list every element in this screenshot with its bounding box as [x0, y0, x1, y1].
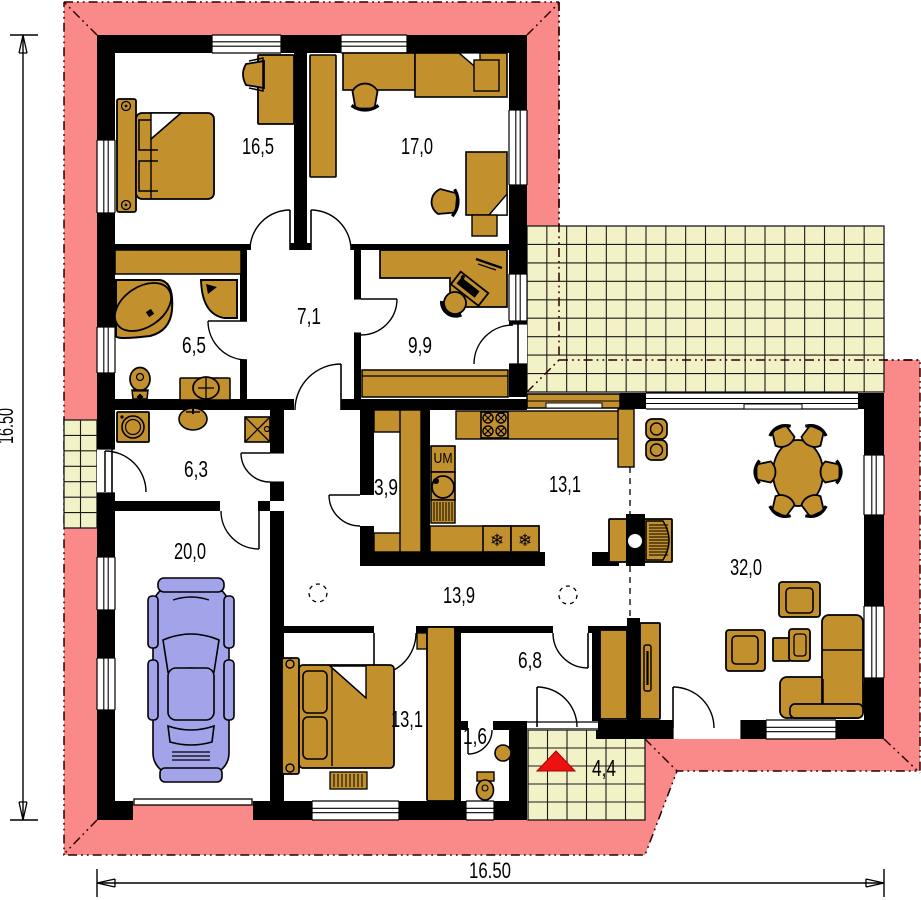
svg-text:UM: UM [434, 450, 453, 467]
svg-text:16.50: 16.50 [0, 408, 18, 444]
svg-text:1,6: 1,6 [463, 723, 487, 749]
svg-text:7,1: 7,1 [297, 303, 321, 329]
svg-text:13,9: 13,9 [443, 582, 475, 608]
svg-text:32,0: 32,0 [730, 554, 762, 580]
svg-text:6,8: 6,8 [518, 647, 542, 673]
svg-text:❄: ❄ [490, 531, 504, 550]
svg-text:13,1: 13,1 [391, 706, 423, 732]
svg-text:13,1: 13,1 [549, 471, 581, 497]
svg-text:4,4: 4,4 [592, 755, 616, 781]
svg-text:9,9: 9,9 [408, 332, 432, 358]
svg-text:6,3: 6,3 [184, 456, 208, 482]
svg-text:20,0: 20,0 [174, 538, 206, 564]
svg-text:6,5: 6,5 [182, 332, 206, 358]
svg-text:17,0: 17,0 [401, 133, 433, 159]
svg-text:❄: ❄ [518, 531, 532, 550]
svg-text:3,9: 3,9 [374, 474, 398, 500]
svg-text:16.50: 16.50 [469, 858, 511, 883]
svg-text:16,5: 16,5 [242, 133, 274, 159]
